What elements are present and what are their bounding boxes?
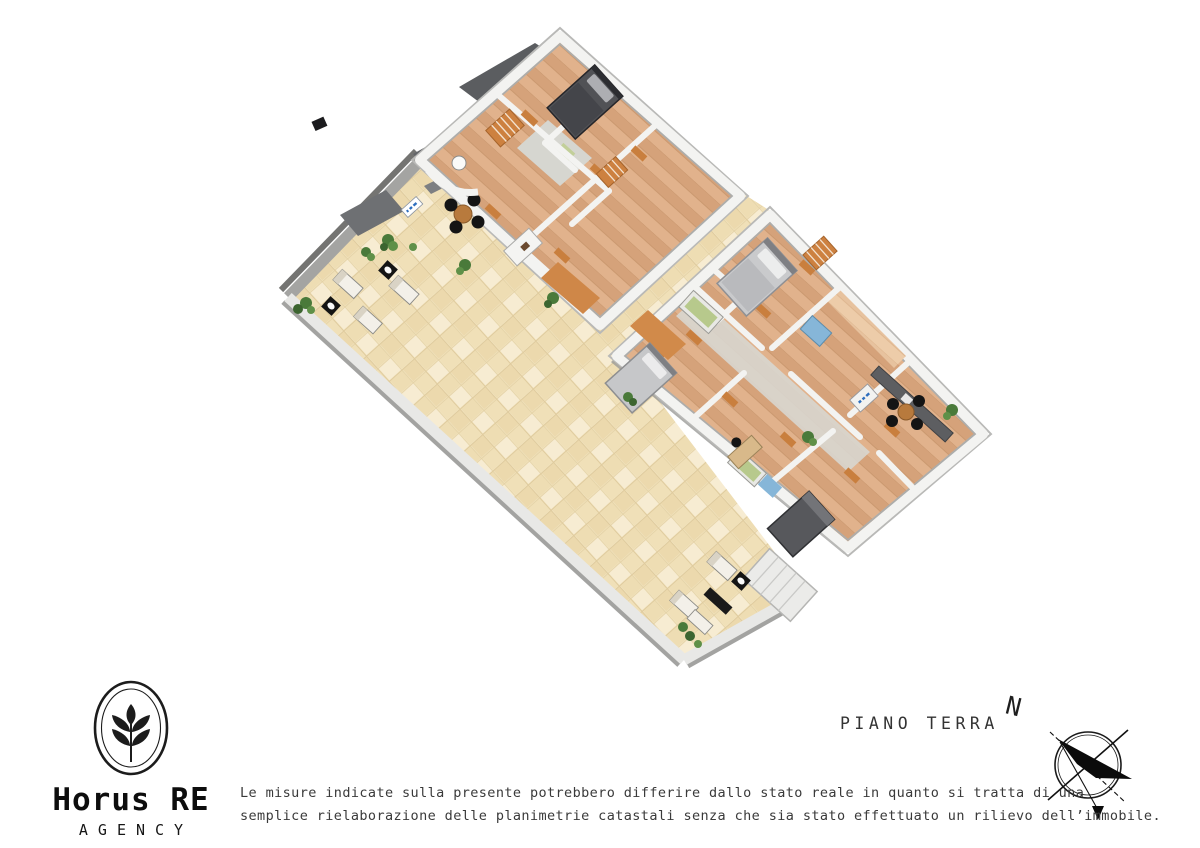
page: Horus RE AGENCY PIANO TERRA N Le misure … [0, 0, 1200, 848]
agency-name: Horus RE [38, 782, 224, 818]
floor-label: PIANO TERRA [840, 714, 999, 733]
wall-tv [311, 117, 327, 131]
plant [409, 243, 417, 251]
disclaimer-line-2: semplice rielaborazione delle planimetri… [240, 805, 1040, 828]
disclaimer-line-1: Le misure indicate sulla presente potreb… [240, 782, 1040, 805]
wheat-ring-icon [38, 676, 224, 780]
agency-subtitle: AGENCY [38, 821, 224, 839]
agency-logo: Horus RE AGENCY [38, 676, 224, 839]
wall-clock [452, 156, 466, 170]
disclaimer: Le misure indicate sulla presente potreb… [240, 782, 1040, 827]
